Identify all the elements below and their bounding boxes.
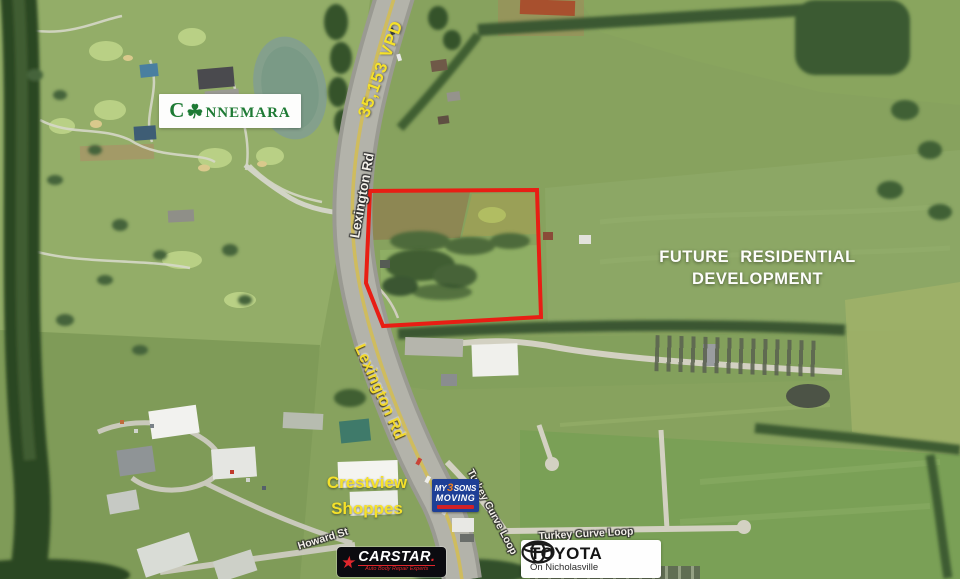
future-development-label: FUTURE RESIDENTIAL DEVELOPMENT	[650, 246, 865, 291]
my3sons-line1: MY3SONS	[435, 483, 477, 494]
carstar-tagline: Auto Body Repair Experts	[358, 565, 435, 574]
crestview-shoppes-label: Crestview Shoppes	[322, 470, 412, 521]
carstar-name: CARSTAR.	[358, 550, 435, 565]
trailer-rows	[654, 335, 820, 377]
my3sons-line2: MOVING	[436, 494, 476, 503]
shamrock-icon: ☘	[185, 102, 205, 123]
crestview-line2: Shoppes	[322, 496, 412, 522]
toyota-logo: TOYOTA On Nicholasville	[521, 540, 661, 578]
my3sons-tagline-bar	[437, 505, 475, 509]
toyota-emblem-icon	[521, 540, 555, 564]
future-development-line2: DEVELOPMENT	[650, 268, 865, 290]
map-canvas: C☘nnemara 35,153 VPD Lexington Rd Lexing…	[0, 0, 960, 579]
carstar-logo: ★ CARSTAR. Auto Body Repair Experts	[337, 547, 446, 577]
crestview-line1: Crestview	[322, 470, 412, 496]
my3sons-digit: 3	[447, 482, 454, 494]
toyota-tagline: On Nicholasville	[530, 563, 602, 573]
connemara-logo-text: C☘nnemara	[169, 100, 291, 122]
future-development-line1: FUTURE RESIDENTIAL	[650, 246, 865, 268]
carstar-star-icon: ★	[340, 554, 358, 571]
my-3-sons-moving-logo: MY3SONS MOVING	[432, 479, 479, 512]
connemara-logo: C☘nnemara	[159, 94, 301, 128]
